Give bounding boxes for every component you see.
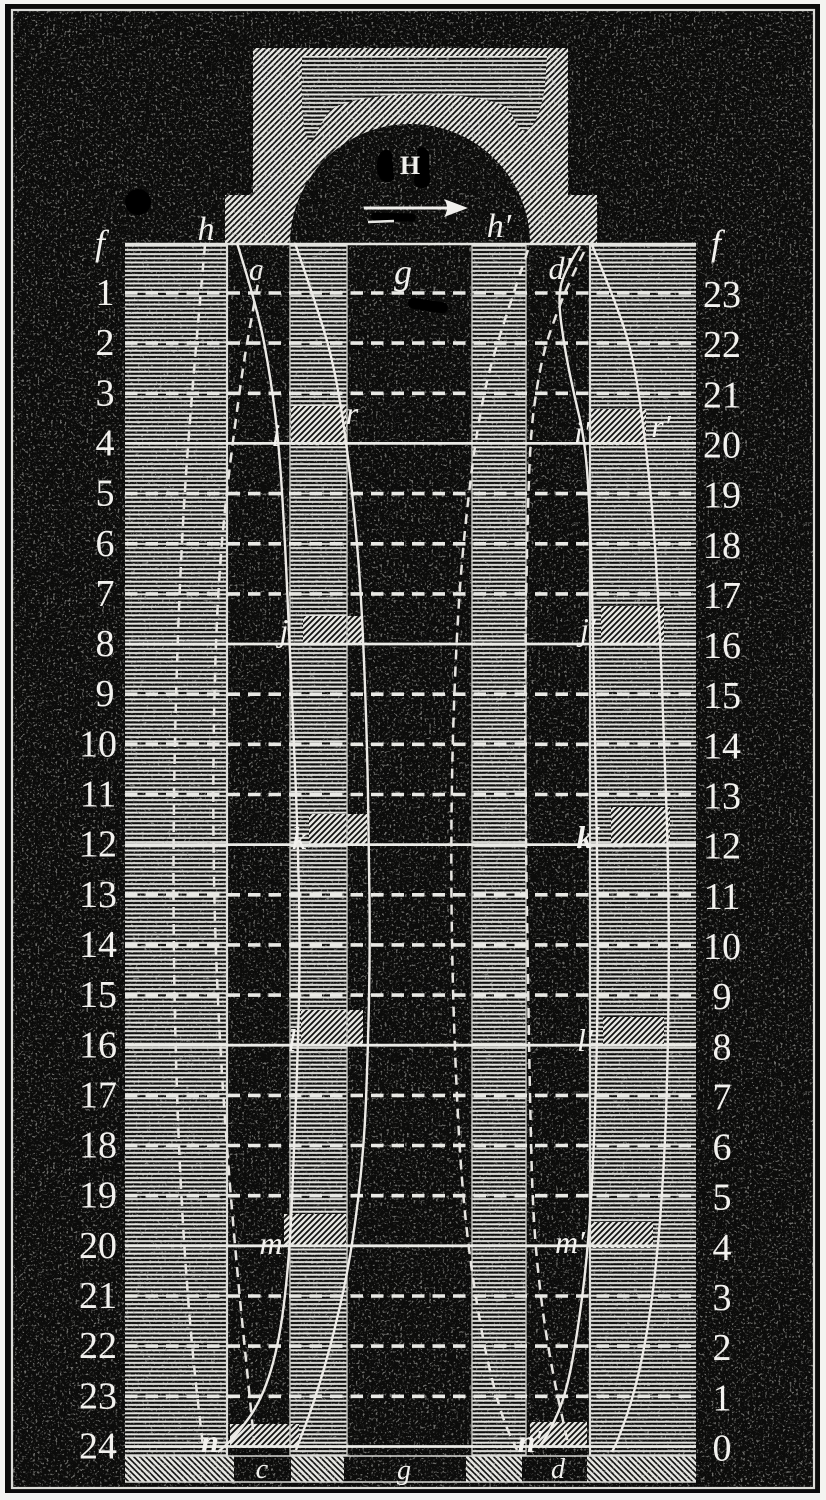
svg-text:15: 15 — [79, 974, 117, 1016]
svg-text:i: i — [272, 417, 281, 453]
svg-text:21: 21 — [703, 374, 741, 416]
svg-text:11: 11 — [80, 774, 117, 816]
svg-text:18: 18 — [79, 1125, 117, 1167]
svg-text:4: 4 — [713, 1227, 732, 1269]
svg-text:k: k — [292, 820, 307, 856]
svg-text:3: 3 — [713, 1277, 732, 1319]
svg-text:7: 7 — [96, 573, 115, 615]
svg-text:11: 11 — [704, 876, 741, 918]
svg-text:l: l — [288, 1022, 297, 1058]
svg-text:3: 3 — [96, 372, 115, 414]
svg-text:H: H — [400, 151, 420, 180]
svg-text:23: 23 — [79, 1375, 117, 1417]
svg-text:j′: j′ — [576, 611, 597, 647]
svg-text:9: 9 — [96, 673, 115, 715]
svg-text:k′: k′ — [577, 819, 602, 855]
svg-text:17: 17 — [79, 1074, 117, 1116]
svg-text:4: 4 — [96, 422, 115, 464]
svg-text:2: 2 — [96, 322, 115, 364]
svg-text:24: 24 — [79, 1425, 117, 1467]
svg-text:22: 22 — [703, 324, 741, 366]
svg-text:2: 2 — [713, 1327, 732, 1369]
svg-text:1: 1 — [713, 1377, 732, 1419]
svg-text:6: 6 — [96, 523, 115, 565]
svg-text:m′: m′ — [555, 1224, 586, 1260]
svg-text:5: 5 — [713, 1177, 732, 1219]
svg-text:8: 8 — [713, 1026, 732, 1068]
svg-text:8: 8 — [96, 623, 115, 665]
svg-text:12: 12 — [703, 826, 741, 868]
svg-text:g: g — [397, 1455, 411, 1486]
svg-text:5: 5 — [96, 473, 115, 515]
svg-text:20: 20 — [703, 424, 741, 466]
svg-text:21: 21 — [79, 1275, 117, 1317]
svg-text:c: c — [249, 251, 263, 287]
svg-text:i′: i′ — [574, 414, 591, 450]
svg-text:9: 9 — [713, 976, 732, 1018]
svg-text:22: 22 — [79, 1325, 117, 1367]
svg-text:20: 20 — [79, 1225, 117, 1267]
svg-text:l′: l′ — [577, 1022, 594, 1058]
svg-text:14: 14 — [79, 924, 117, 966]
svg-text:7: 7 — [713, 1076, 732, 1118]
svg-text:16: 16 — [79, 1024, 117, 1066]
svg-text:d: d — [551, 1454, 566, 1485]
svg-text:14: 14 — [703, 725, 741, 767]
svg-text:23: 23 — [703, 274, 741, 316]
svg-text:c: c — [256, 1454, 269, 1485]
svg-text:n′: n′ — [518, 1423, 545, 1459]
svg-text:12: 12 — [79, 824, 117, 866]
svg-text:r: r — [346, 395, 359, 431]
svg-text:18: 18 — [703, 525, 741, 567]
svg-text:16: 16 — [703, 625, 741, 667]
svg-text:17: 17 — [703, 575, 741, 617]
svg-text:6: 6 — [713, 1127, 732, 1169]
svg-text:r′: r′ — [651, 408, 671, 444]
svg-text:g: g — [394, 252, 412, 292]
svg-text:10: 10 — [703, 926, 741, 968]
svg-text:n: n — [201, 1423, 219, 1459]
svg-text:13: 13 — [79, 874, 117, 916]
svg-text:13: 13 — [703, 776, 741, 818]
svg-text:m: m — [259, 1225, 282, 1261]
svg-text:h′: h′ — [487, 208, 512, 245]
svg-text:19: 19 — [703, 475, 741, 517]
svg-text:10: 10 — [79, 723, 117, 765]
svg-text:1: 1 — [96, 272, 115, 314]
svg-text:0: 0 — [713, 1427, 732, 1469]
svg-text:h: h — [198, 211, 215, 248]
svg-text:15: 15 — [703, 675, 741, 717]
svg-text:d′: d′ — [549, 250, 573, 286]
svg-text:19: 19 — [79, 1175, 117, 1217]
